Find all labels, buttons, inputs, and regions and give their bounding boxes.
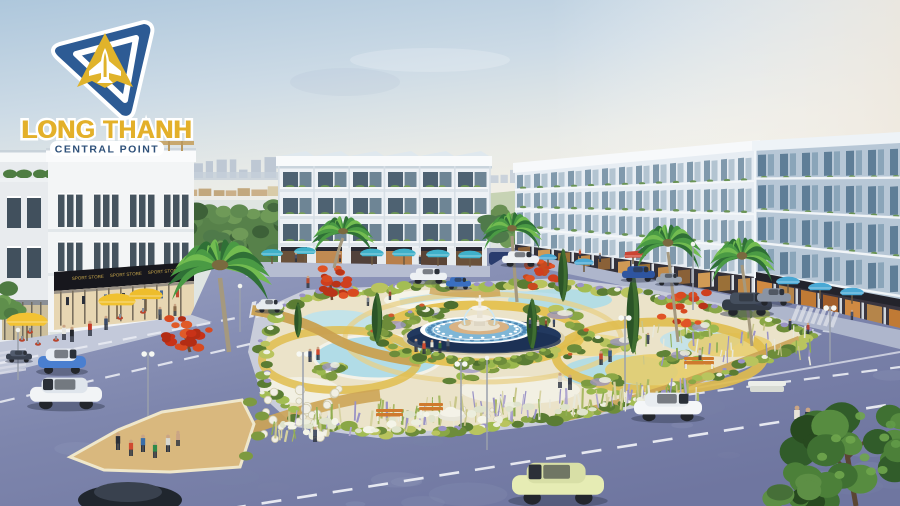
svg-text:CENTRAL POINT: CENTRAL POINT [55, 144, 159, 156]
svg-text:LONG THANH: LONG THANH [23, 116, 192, 144]
